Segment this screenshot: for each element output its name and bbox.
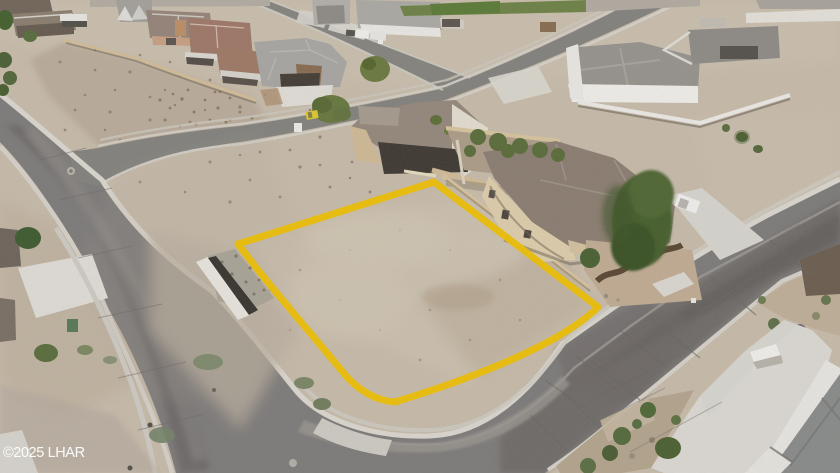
svg-text:©2025 LHAR: ©2025 LHAR	[3, 445, 85, 461]
